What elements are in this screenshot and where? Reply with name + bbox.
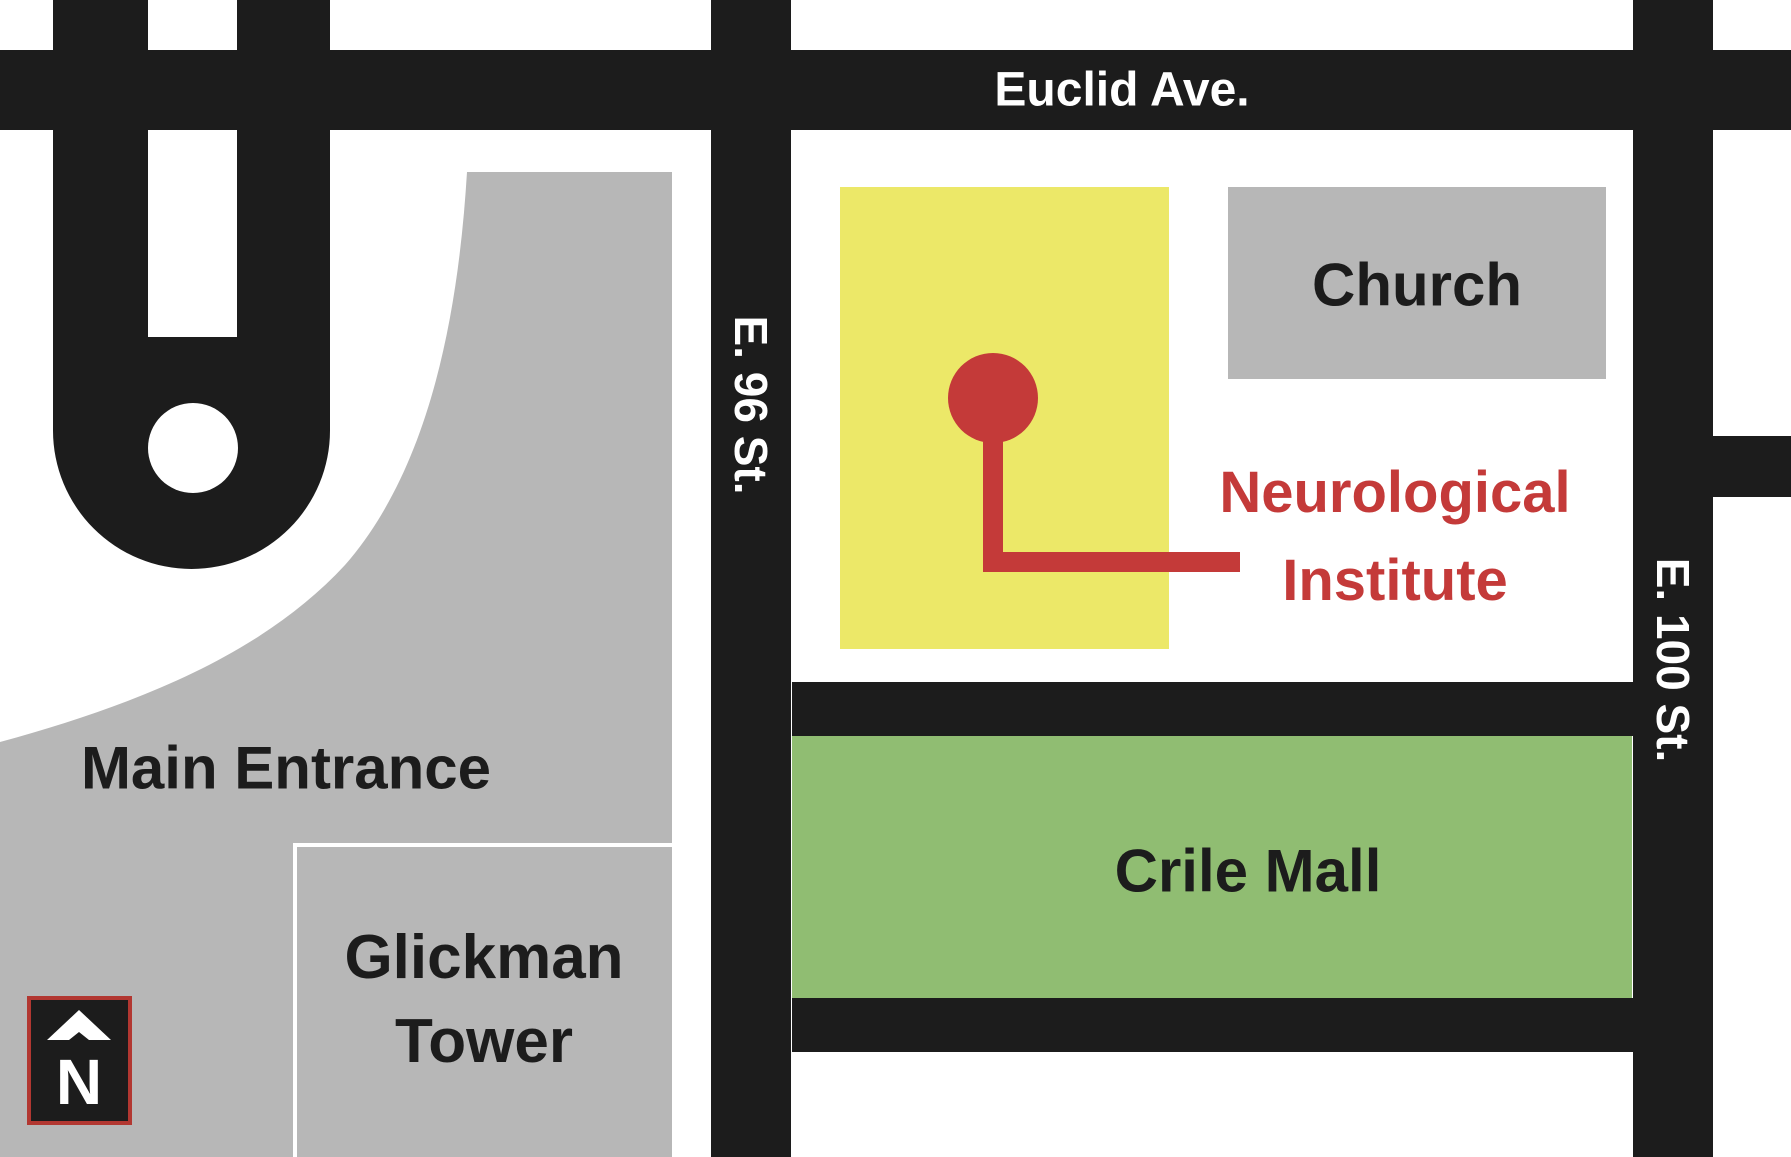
label-glickman-line2: Tower [344,1000,623,1084]
label-neuro-line1: Neurological [1219,449,1570,537]
road-e96-st [711,0,791,1157]
north-indicator-box: N [27,996,132,1125]
road-right-side-stub [1713,436,1791,497]
label-main-entrance: Main Entrance [81,734,491,803]
north-arrow-icon: N [31,1000,128,1121]
label-glickman-line1: Glickman [344,916,623,1000]
label-glickman-tower: Glickman Tower [344,916,623,1084]
label-crile-mall: Crile Mall [1115,837,1382,906]
north-letter: N [56,1046,102,1118]
location-pin-icon [948,353,1038,443]
label-e100-st: E. 100 St. [1646,558,1700,763]
road-euclid-ave [0,50,1791,130]
label-euclid-ave: Euclid Ave. [994,63,1249,118]
campus-map: N Euclid Ave. E. 96 St. E. 100 St. Churc… [0,0,1791,1157]
pin-leader-line [983,552,1240,572]
entrance-drive-island [148,403,238,493]
north-arrow-triangle [47,1010,111,1040]
label-e96-st: E. 96 St. [724,316,778,495]
label-neurological-institute: Neurological Institute [1219,449,1570,625]
road-crile-mall-north [792,682,1633,736]
label-church: Church [1312,251,1522,320]
label-neuro-line2: Institute [1219,537,1570,625]
road-crile-mall-south [792,998,1633,1052]
